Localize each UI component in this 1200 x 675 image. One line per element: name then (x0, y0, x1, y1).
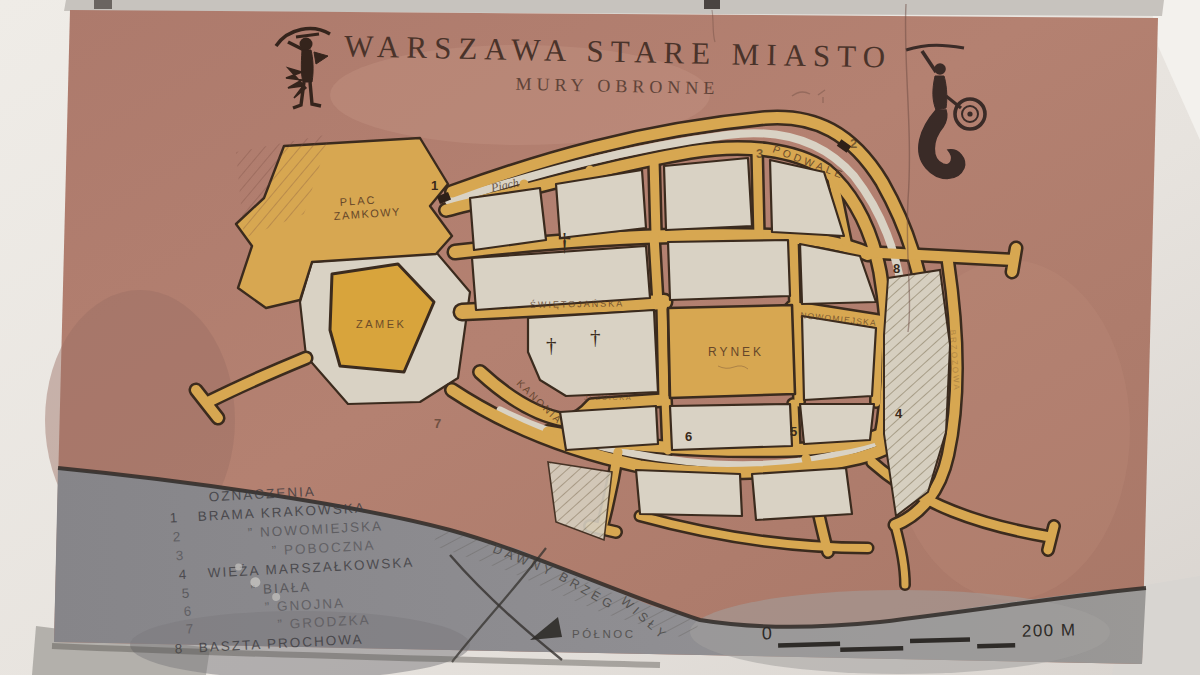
label-jezuicka: JEZUICKA (584, 393, 632, 402)
scale-end-label: 200 M (1022, 620, 1077, 640)
frame-corner-mark (94, 0, 112, 9)
marker-7: 7 (434, 416, 441, 431)
marker-2: 2 (850, 136, 857, 151)
scale-start-label: 0 (762, 623, 774, 643)
label-rynek: RYNEK (708, 345, 764, 359)
photo-of-relief-map-plaque: † † † PLAC ZAMKOWY ZAMEK RYNEK ŚWIĘTOJAŃ… (0, 0, 1200, 675)
church-cross-icon: † (590, 325, 601, 349)
marker-1: 1 (431, 178, 438, 193)
marker-3: 3 (756, 146, 763, 161)
label-zamek: ZAMEK (356, 318, 406, 330)
title-subtitle: MURY OBRONNE (515, 74, 719, 98)
plaque-scene: † † † PLAC ZAMKOWY ZAMEK RYNEK ŚWIĘTOJAŃ… (0, 0, 1200, 675)
marker-4: 4 (895, 406, 903, 421)
north-label: PÓŁNOC (572, 628, 636, 640)
frame-joint-mark (704, 0, 720, 9)
marker-5: 5 (790, 424, 797, 439)
church-cross-icon: † (546, 333, 557, 357)
label-plac-zamkowy: PLAC (339, 193, 376, 208)
label-swietojanska: ŚWIĘTOJAŃSKA (530, 297, 625, 310)
marker-8: 8 (893, 261, 900, 276)
church-cross-icon: † (558, 227, 571, 256)
marker-6: 6 (685, 429, 692, 444)
